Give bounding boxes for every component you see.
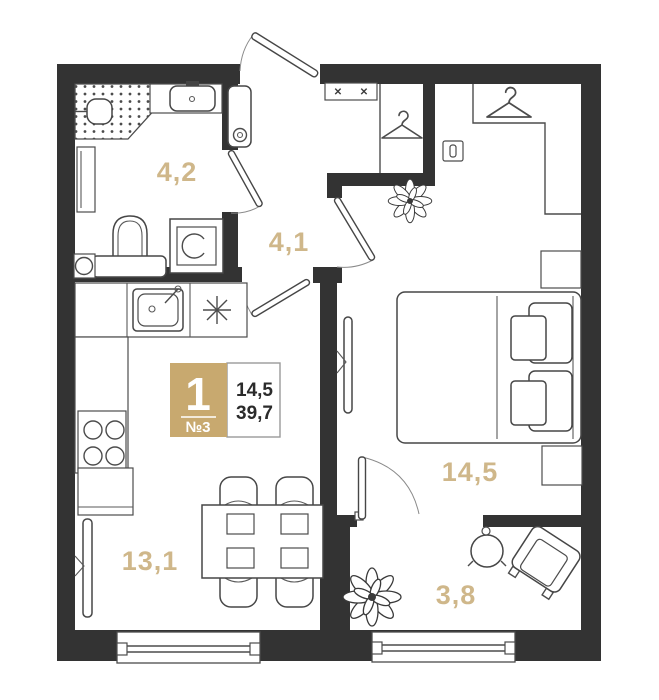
balcony bbox=[343, 524, 583, 626]
room-label-bedroom: 14,5 bbox=[442, 457, 499, 487]
wall-closet-right bbox=[423, 80, 435, 173]
toilet-tank bbox=[92, 256, 166, 277]
tv-living bbox=[83, 519, 92, 617]
window-balcony bbox=[372, 632, 515, 662]
badge-total-area: 39,7 bbox=[236, 403, 273, 424]
door-swing-arc bbox=[240, 35, 253, 71]
tv-bedroom bbox=[344, 317, 352, 413]
table-leg bbox=[501, 561, 506, 566]
door-leaf bbox=[333, 196, 375, 261]
fridge bbox=[78, 468, 133, 515]
door-balcony bbox=[355, 457, 419, 520]
wall-top-left bbox=[57, 64, 240, 84]
wall-top-right bbox=[320, 64, 601, 84]
wall-left bbox=[57, 64, 75, 630]
floor-plan: ✕ ✕ bbox=[0, 0, 659, 700]
apartment-badge: 1 №3 14,5 39,7 bbox=[170, 363, 280, 437]
plant-icon bbox=[388, 179, 432, 223]
place-mat bbox=[227, 548, 254, 568]
kitchen-sink-basin bbox=[138, 294, 178, 326]
bathroom bbox=[74, 81, 223, 278]
room-label-kitchen: 13,1 bbox=[122, 546, 179, 576]
place-mat bbox=[281, 514, 308, 534]
hanger-icon bbox=[487, 88, 531, 117]
window-cap bbox=[250, 643, 260, 655]
shower-head-icon bbox=[87, 99, 112, 124]
floor-plan-canvas: ✕ ✕ bbox=[0, 0, 659, 700]
bedroom bbox=[337, 84, 582, 485]
place-mat bbox=[227, 514, 254, 534]
plant-icon bbox=[343, 568, 401, 626]
stove-star-icon bbox=[203, 296, 231, 324]
window-frame bbox=[372, 632, 515, 662]
wall-balcony-left bbox=[320, 515, 357, 527]
wall-right bbox=[581, 64, 601, 661]
door-bedroom bbox=[333, 196, 375, 267]
badge-apartment-number: №3 bbox=[185, 419, 210, 436]
door-leaf bbox=[251, 32, 319, 78]
hallway: ✕ ✕ bbox=[228, 83, 422, 173]
hob bbox=[78, 411, 126, 471]
table-leg bbox=[468, 561, 473, 566]
pillow-small bbox=[511, 316, 546, 360]
room-label-balcony: 3,8 bbox=[436, 580, 477, 610]
wall-hall-corner bbox=[313, 267, 342, 283]
badge-living-area: 14,5 bbox=[236, 380, 273, 401]
wall-closet-bottom bbox=[327, 173, 435, 186]
window-cap bbox=[372, 642, 382, 654]
nightstand bbox=[541, 251, 581, 288]
coffee-table bbox=[468, 527, 506, 567]
door-swing-arc bbox=[337, 260, 373, 267]
wall-bathroom-lower bbox=[222, 212, 238, 269]
wall-kitchen-balcony bbox=[320, 527, 350, 630]
room-label-hallway: 4,1 bbox=[269, 227, 310, 257]
switch-toggle bbox=[450, 145, 456, 157]
shoe-cabinet bbox=[325, 83, 377, 100]
kitchen-living bbox=[75, 283, 323, 617]
table-knob bbox=[482, 527, 490, 535]
pillow-small bbox=[511, 381, 546, 425]
cross-mark-icon: ✕ bbox=[334, 87, 342, 98]
wall-closet-stub bbox=[327, 186, 342, 198]
wall-balcony-right bbox=[483, 515, 581, 527]
table-top bbox=[471, 535, 503, 567]
nightstand bbox=[542, 446, 582, 485]
dining-set bbox=[202, 477, 323, 607]
window-kitchen bbox=[117, 632, 260, 663]
door-kitchen bbox=[241, 278, 311, 317]
hanger-icon bbox=[382, 111, 422, 138]
window-cap bbox=[117, 643, 127, 655]
door-swing-arc bbox=[362, 457, 419, 514]
wall-kitchen-bedroom bbox=[320, 283, 337, 515]
armchair bbox=[505, 524, 582, 601]
door-entrance bbox=[240, 32, 319, 78]
place-mat bbox=[281, 548, 308, 568]
cross-mark-icon: ✕ bbox=[360, 87, 368, 98]
door-leaf bbox=[227, 150, 263, 208]
wardrobe-outline bbox=[473, 84, 581, 214]
window-frame bbox=[117, 632, 260, 663]
badge-rooms-count: 1 bbox=[185, 368, 211, 420]
shower-partition bbox=[77, 147, 95, 212]
faucet-icon bbox=[186, 81, 199, 86]
door-leaf bbox=[359, 457, 366, 519]
door-bathroom bbox=[227, 150, 263, 214]
bathroom-sink bbox=[170, 86, 215, 111]
room-label-bathroom: 4,2 bbox=[157, 157, 198, 187]
window-cap bbox=[505, 642, 515, 654]
door-leaf bbox=[251, 278, 311, 317]
